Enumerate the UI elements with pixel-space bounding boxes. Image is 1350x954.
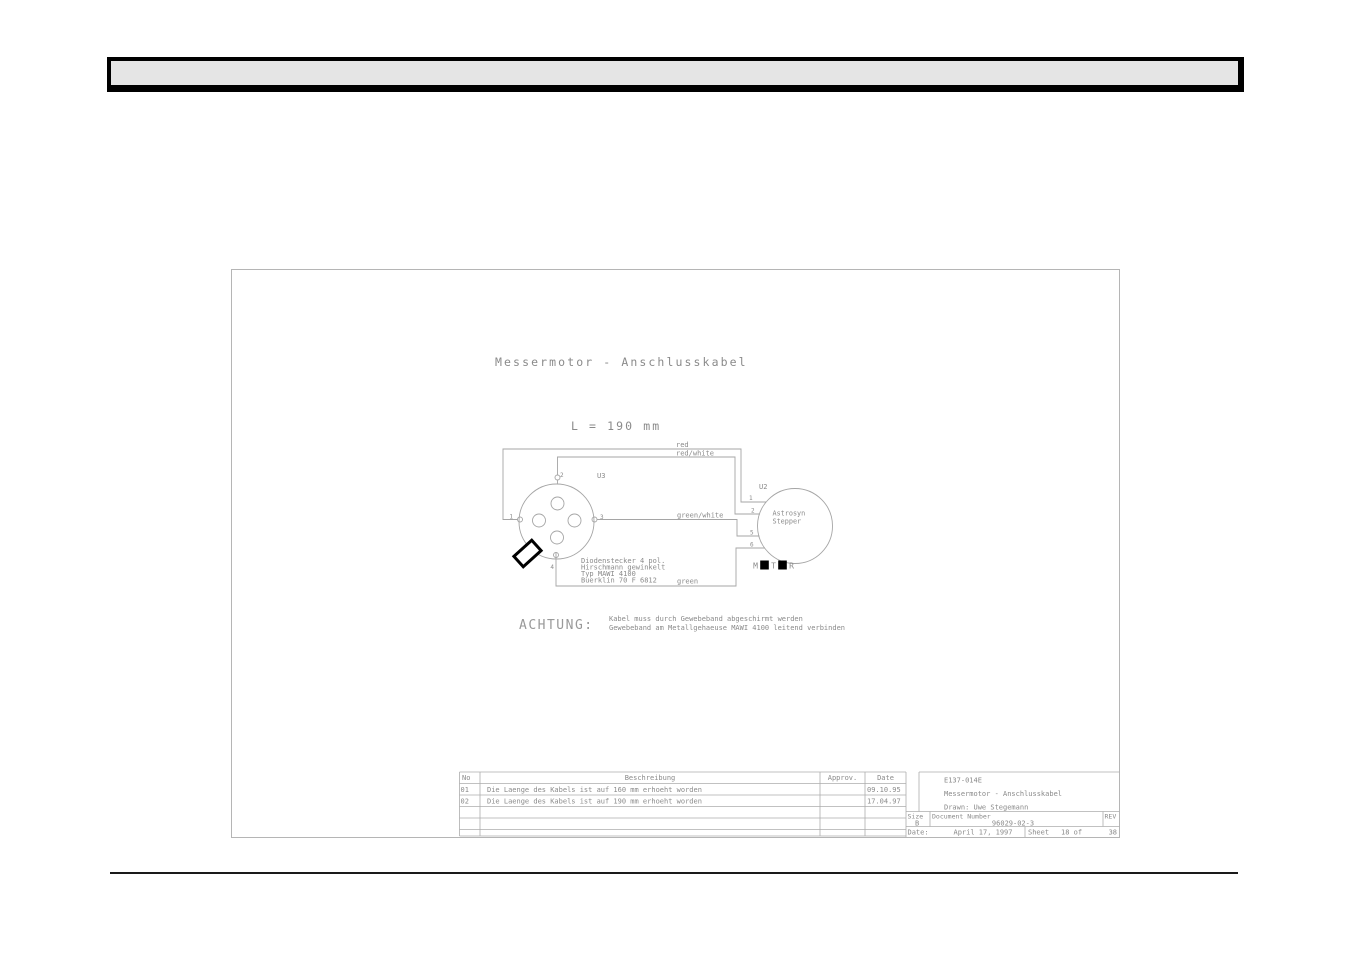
svg-text:17.04.97: 17.04.97 xyxy=(867,798,901,806)
connector-note: Diodenstecker 4 pol. Hirschmann gewinkel… xyxy=(581,557,665,585)
total-sheets: 38 xyxy=(1109,829,1117,837)
document-number: 96029-02-3 xyxy=(992,820,1034,828)
wire-red-white xyxy=(558,457,761,514)
caution-heading: ACHTUNG: xyxy=(519,618,594,633)
connector-pin-hole-top xyxy=(551,497,564,510)
date-value: April 17, 1997 xyxy=(953,829,1012,837)
svg-text:O: O xyxy=(780,562,785,571)
schematic-sheet: Messermotor - Anschlusskabel L = 190 mm … xyxy=(231,269,1120,838)
rev-row-01: 01 Die Laenge des Kabels ist auf 160 mm … xyxy=(461,786,901,794)
svg-text:01: 01 xyxy=(461,786,469,794)
svg-text:Buerklin 70 F 6812: Buerklin 70 F 6812 xyxy=(581,577,657,585)
connector-pin-hole-right xyxy=(568,514,581,527)
wire-label-red: red xyxy=(676,441,689,449)
size-value: B xyxy=(915,820,919,828)
footer-separator-line xyxy=(110,872,1238,874)
doc-title: Messermotor - Anschlusskabel xyxy=(944,790,1062,798)
svg-text:09.10.95: 09.10.95 xyxy=(867,786,901,794)
stepper-name-line2: Stepper xyxy=(773,518,802,526)
drawing-title: Messermotor - Anschlusskabel xyxy=(495,355,748,369)
svg-text:R: R xyxy=(789,562,794,571)
connector-pin-label-1: 1 xyxy=(509,514,513,521)
svg-text:Die Laenge des Kabels ist auf: Die Laenge des Kabels ist auf 160 mm erh… xyxy=(487,786,702,794)
wire-red xyxy=(503,449,767,520)
connector-terminal-1 xyxy=(518,517,523,522)
header-bar xyxy=(107,57,1244,92)
stepper-pin-label-6: 6 xyxy=(750,542,754,549)
connector-refdes: U3 xyxy=(597,472,605,480)
connector-symbol xyxy=(514,475,597,567)
stepper-pin-label-2: 2 xyxy=(751,508,755,515)
date-label: Date: xyxy=(908,829,929,837)
wire-label-green: green xyxy=(677,578,698,586)
connector-pin-label-3: 3 xyxy=(600,514,604,521)
wire-green-white xyxy=(597,520,760,537)
revision-table: No Beschreibung Approv. Date 01 Die Laen… xyxy=(460,772,907,837)
connector-pin-hole-left xyxy=(533,514,546,527)
svg-text:M: M xyxy=(753,562,758,571)
svg-text:T: T xyxy=(771,562,776,571)
wire-label-red-white: red/white xyxy=(676,450,714,458)
stepper-pin-label-5: 5 xyxy=(750,530,754,537)
connector-pin-label-2: 2 xyxy=(560,472,564,479)
stepper-name-line1: Astrosyn xyxy=(773,510,806,518)
stepper-refdes: U2 xyxy=(759,483,767,491)
doc-code: E137-014E xyxy=(944,777,982,785)
sheet-label: Sheet xyxy=(1028,829,1049,837)
svg-text:Die Laenge des Kabels ist auf: Die Laenge des Kabels ist auf 190 mm erh… xyxy=(487,798,702,806)
wire-label-green-white: green/white xyxy=(677,512,723,520)
rev-col-approv: Approv. xyxy=(828,774,858,782)
stepper-symbol: Astrosyn Stepper xyxy=(758,489,833,564)
rev-col-date: Date xyxy=(877,774,894,782)
document-number-label: Document Number xyxy=(932,813,991,821)
cable-gland-symbol xyxy=(514,540,541,566)
rev-row-02: 02 Die Laenge des Kabels ist auf 190 mm … xyxy=(461,798,901,806)
rev-col-description: Beschreibung xyxy=(625,774,676,782)
connector-terminal-3 xyxy=(592,517,597,522)
svg-text:02: 02 xyxy=(461,798,469,806)
caution-line1: Kabel muss durch Gewebeband abgeschirmt … xyxy=(609,615,803,623)
manual-page: { "drawing": { "title": "Messermotor - A… xyxy=(0,0,1350,954)
rev-col-no: No xyxy=(462,774,470,782)
sheet-value: 18 of xyxy=(1061,829,1082,837)
title-block: E137-014E Messermotor - Anschlusskabel D… xyxy=(906,772,1120,837)
connector-pin-hole-bottom xyxy=(551,531,564,544)
connector-pin-label-4: 4 xyxy=(550,564,554,571)
drawn-by: Drawn: Uwe Stegemann xyxy=(944,804,1028,812)
svg-text:O: O xyxy=(762,562,767,571)
rev-label: REV xyxy=(1105,813,1117,821)
motor-caption: M O T O R xyxy=(753,561,794,571)
cable-length-label: L = 190 mm xyxy=(571,419,661,433)
stepper-pin-label-1: 1 xyxy=(749,495,753,502)
caution-line2: Gewebeband am Metallgehaeuse MAWI 4100 l… xyxy=(609,624,845,632)
